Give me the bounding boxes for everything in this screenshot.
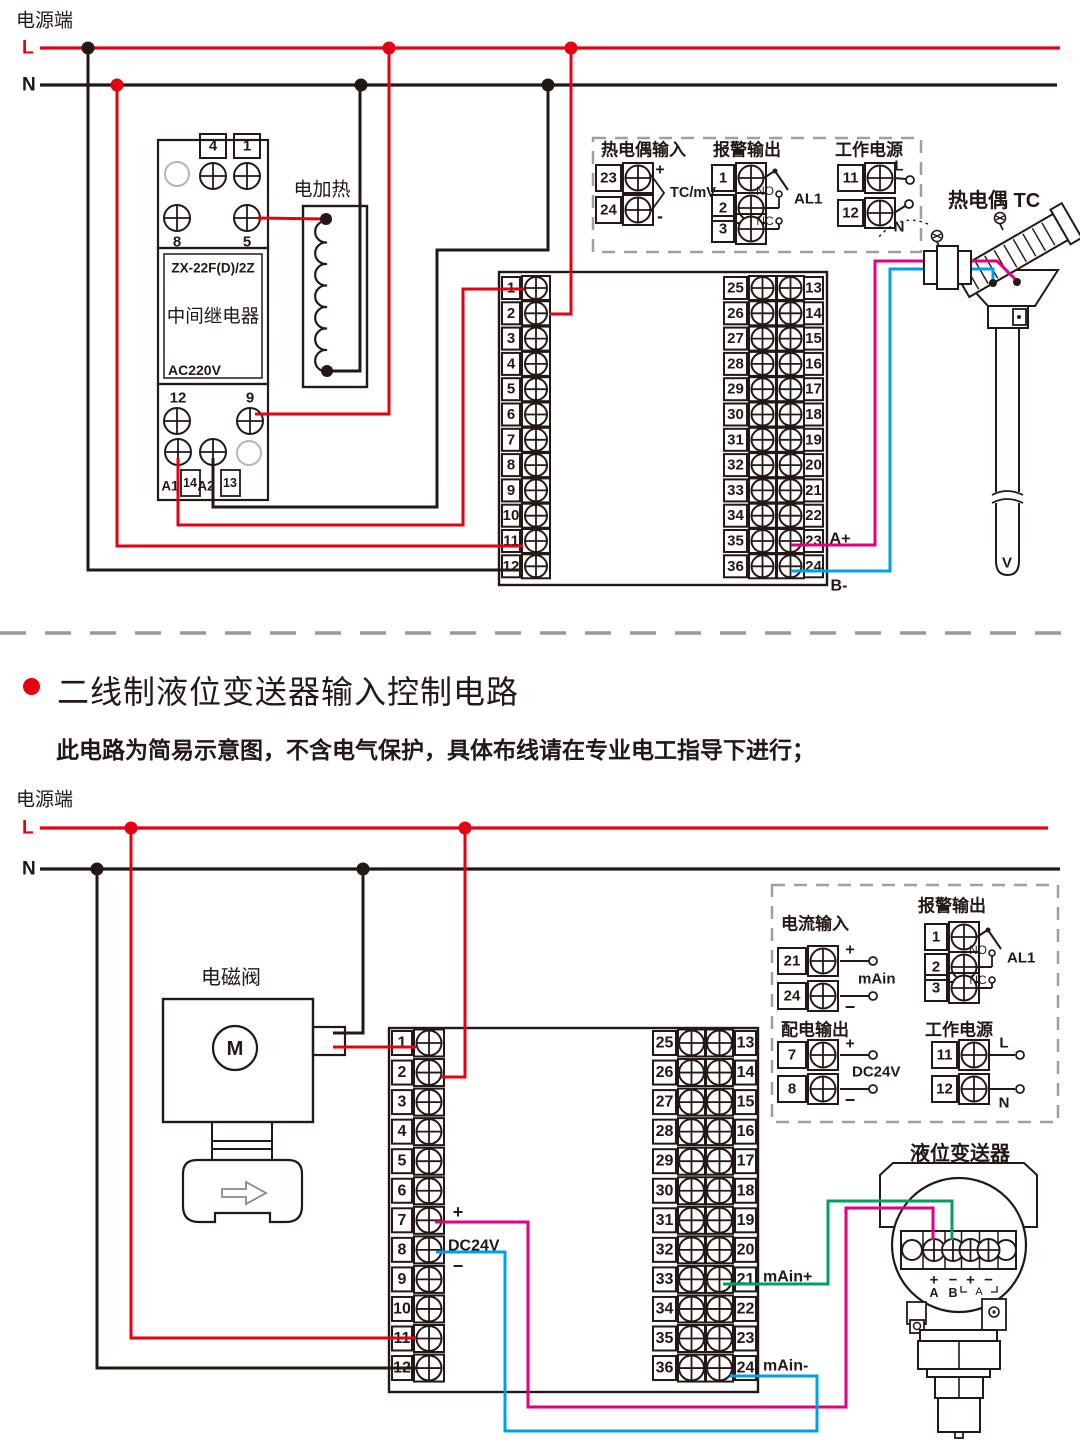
terminal-number: 13: [737, 1035, 755, 1052]
tc-tip-mark: V: [1002, 555, 1012, 572]
label: N: [894, 219, 905, 236]
terminal-number: 28: [656, 1123, 674, 1140]
screw-terminal-icon: [679, 1031, 704, 1056]
panel-group-title: 电流输入: [781, 914, 849, 934]
terminal-number: 6: [398, 1182, 407, 1199]
junction-dot: [357, 863, 370, 876]
screw-terminal-icon: [525, 505, 547, 527]
terminal-number: 3: [507, 330, 515, 347]
section-note: 此电路为简易示意图，不含电气保护，具体布线请在专业电工指导下进行；: [56, 731, 815, 765]
terminal-number: 12: [936, 1081, 953, 1098]
screw-terminal-icon: [780, 530, 802, 552]
switch-arm: [775, 171, 788, 190]
terminal-number: 2: [932, 959, 940, 976]
terminal-number: 10: [393, 1300, 411, 1317]
terminal-number: 29: [727, 381, 744, 398]
terminal-number: 1: [243, 138, 251, 155]
screw-terminal-icon: [525, 302, 547, 324]
terminal-number: 6: [507, 406, 515, 423]
heater-label: 电加热: [293, 179, 350, 201]
terminal-number: 21: [805, 482, 822, 499]
label: +: [655, 162, 664, 179]
neck-collar: [920, 1330, 997, 1341]
screw-terminal-icon: [780, 328, 802, 350]
label: −: [845, 1090, 856, 1110]
wire: [894, 178, 906, 179]
screw-terminal-icon: [752, 479, 774, 501]
wire-heater-to-n: [327, 85, 360, 371]
terminal-number: 18: [737, 1182, 755, 1199]
bottom-power-rails: 电源端LN: [16, 789, 1060, 880]
power-terminal-label: 电源端: [16, 789, 73, 811]
label: −: [845, 997, 856, 1017]
screw-terminal-icon: [234, 163, 260, 189]
screw-terminal-icon: [679, 1149, 704, 1174]
screw-terminal-icon: [417, 1237, 442, 1262]
terminal-number: 30: [727, 406, 744, 423]
junction-dot: [91, 863, 104, 876]
panel-group-title: 工作电源: [835, 140, 903, 160]
terminal-number: 8: [788, 1081, 796, 1098]
screw-terminal-icon: [752, 277, 774, 299]
open-terminal: [869, 992, 877, 1000]
screw-terminal-icon: [679, 1326, 704, 1351]
junction-dot: [542, 79, 555, 92]
terminal-number: 11: [937, 1047, 953, 1064]
screw-terminal-icon: [752, 505, 774, 527]
terminal-number: 26: [727, 305, 744, 322]
screw-terminal-icon: [707, 1090, 732, 1115]
wiring-diagram-page: 电源端LN4185ZX-22F(D)/2Z中间继电器AC220V129A114A…: [0, 0, 1080, 1455]
screw-terminal-icon: [868, 166, 893, 191]
open-terminal: [869, 1085, 877, 1093]
label: +: [845, 942, 854, 959]
terminal-number: 14: [805, 305, 822, 322]
screw-terminal-icon: [752, 555, 774, 577]
screw-terminal-icon: [626, 198, 651, 223]
polarity-label: −: [984, 1272, 993, 1289]
label: +: [453, 1202, 464, 1222]
terminal-number: 7: [507, 431, 515, 448]
wire-l-to-12: [88, 48, 522, 570]
screw-terminal-icon: [417, 1208, 442, 1233]
screw-terminal-icon: [811, 1043, 836, 1068]
terminal-number: 33: [727, 482, 744, 499]
terminal-number: 21: [784, 953, 801, 970]
terminal-number: 31: [656, 1212, 674, 1229]
terminal-number: 5: [507, 381, 515, 398]
screw-terminal-icon: [780, 555, 802, 577]
open-terminal: [906, 176, 914, 184]
label: 12: [170, 390, 187, 407]
tc-probe-upper: [996, 328, 1019, 494]
label: L: [999, 1035, 1008, 1052]
screw-terminal-icon: [752, 404, 774, 426]
terminal-number: 3: [932, 980, 940, 997]
wire-n-to-12: [97, 869, 416, 1368]
ab-label: A: [929, 1286, 938, 1300]
terminal-number: 7: [788, 1047, 796, 1064]
screw-terminal-icon: [417, 1090, 442, 1115]
screw-terminal-icon: [234, 205, 260, 231]
terminal-number: 23: [805, 533, 822, 550]
screw-terminal-icon: [707, 1149, 732, 1174]
terminal-number: 17: [737, 1153, 755, 1170]
screw-terminal-icon: [626, 166, 651, 191]
main-minus-label: mAin-: [763, 1358, 808, 1375]
screw-terminal-icon: [679, 1090, 704, 1115]
terminal-number: 36: [727, 558, 744, 575]
terminal-number: 26: [656, 1064, 674, 1081]
line-n-label: N: [22, 75, 36, 96]
terminal-number: 32: [656, 1241, 674, 1258]
terminal-number: 23: [737, 1330, 755, 1347]
junction-dot: [459, 822, 472, 835]
line-n-label: N: [22, 859, 36, 880]
ab-label: B: [948, 1286, 957, 1300]
screw-terminal-icon: [525, 530, 547, 552]
terminal-number: 24: [600, 202, 617, 219]
terminal-number: 16: [805, 355, 822, 372]
motor-label: M: [227, 1038, 244, 1060]
polarity-label: +: [966, 1272, 975, 1289]
terminal-number: 3: [398, 1094, 407, 1111]
neck-flange: [927, 1369, 990, 1377]
screw-terminal-icon: [780, 454, 802, 476]
terminal-number: 20: [737, 1241, 755, 1258]
label: -: [657, 206, 663, 226]
label: 14: [183, 476, 197, 490]
terminal-number: 1: [719, 170, 727, 187]
relay-model: ZX-22F(D)/2Z: [171, 261, 254, 276]
terminal-number: 8: [398, 1241, 407, 1258]
screw-terminal-icon: [525, 479, 547, 501]
section-title: 二线制液位变送器输入控制电路: [57, 667, 519, 713]
screw-terminal-icon: [707, 1119, 732, 1144]
terminal-number: 18: [805, 406, 822, 423]
screw-terminal-icon: [707, 1237, 732, 1262]
terminal-number: 13: [805, 280, 822, 297]
bracket-label: A: [975, 1286, 983, 1298]
screw-terminal-icon: [525, 353, 547, 375]
solenoid-valve: 电磁阀M: [163, 966, 345, 1222]
screw-terminal-icon: [962, 1043, 987, 1068]
junction-dot: [82, 42, 95, 55]
screw-terminal-icon: [752, 302, 774, 324]
terminal-number: 12: [842, 205, 859, 222]
panel-group-title: 热电偶输入: [601, 140, 686, 160]
no-contact: [776, 191, 782, 197]
screw-terminal-icon: [200, 163, 226, 189]
screw-terminal-icon: [164, 408, 190, 434]
terminal-number: 33: [656, 1271, 674, 1288]
heater-coil: [315, 221, 327, 372]
screw-terminal-icon: [707, 1208, 732, 1233]
terminal-number: 8: [507, 457, 515, 474]
junction-dot: [1013, 278, 1021, 286]
junction-dot: [565, 42, 578, 55]
wire-a-plus: [791, 261, 1017, 545]
label: NC: [969, 973, 987, 987]
power-terminal-label: 电源端: [16, 10, 73, 32]
screw-terminal-icon: [811, 949, 836, 974]
open-terminal: [905, 200, 913, 208]
tc-label: 热电偶 TC: [948, 188, 1040, 212]
screw-terminal-icon: [707, 1296, 732, 1321]
screw-terminal-icon: [707, 1031, 732, 1056]
terminal-number: 7: [398, 1212, 407, 1229]
level-transmitter: 液位变送器+−+−ABA: [880, 1141, 1037, 1438]
main-label: mAin: [858, 971, 896, 988]
junction-dot: [320, 213, 332, 225]
terminal-number: 22: [737, 1300, 755, 1317]
screw-terminal-icon: [164, 205, 190, 231]
screw-terminal-icon: [707, 1178, 732, 1203]
ear-hole: [914, 1323, 921, 1330]
heater-box: [303, 206, 367, 387]
junction-dot: [355, 79, 368, 92]
terminal-number: 32: [727, 457, 744, 474]
relay-top-box: [158, 140, 268, 248]
terminal-number: 2: [507, 305, 515, 322]
relay: 4185ZX-22F(D)/2Z中间继电器AC220V129A114A213: [158, 134, 268, 500]
wire-dc24v-minus-to-24: [436, 1252, 817, 1431]
screw-terminal-icon: [417, 1356, 442, 1381]
wires-bottom: [91, 822, 953, 1432]
screw-terminal-icon: [679, 1119, 704, 1144]
screw-terminal-icon: [752, 353, 774, 375]
screw-terminal-icon: [780, 429, 802, 451]
junction-dot: [1017, 315, 1021, 319]
screw-terminal-icon: [752, 454, 774, 476]
junction-dot: [321, 365, 333, 377]
terminal-number: 28: [727, 355, 744, 372]
screw-terminal-icon: [780, 302, 802, 324]
screw-terminal-icon: [752, 530, 774, 552]
screw-terminal-icon: [811, 984, 836, 1009]
line: [1000, 224, 1003, 230]
terminal-number: 36: [656, 1360, 674, 1377]
terminal-number: 20: [805, 457, 822, 474]
label: N: [999, 1095, 1010, 1112]
relay-hole: [237, 441, 261, 465]
screw-terminal-icon: [780, 277, 802, 299]
panel-group-title: 工作电源: [925, 1020, 993, 1040]
screw-terminal-icon: [417, 1178, 442, 1203]
screw-terminal-icon: [679, 1208, 704, 1233]
terminal-number: 4: [507, 355, 516, 372]
terminal-number: 25: [727, 280, 744, 297]
label: NO: [969, 943, 987, 957]
terminal-number: 29: [656, 1153, 674, 1170]
screw-terminal-icon: [679, 1178, 704, 1203]
screw-terminal-icon: [707, 1267, 732, 1292]
section-bullet-icon: [23, 678, 40, 695]
wire-l-to-relay9: [255, 48, 389, 414]
gland: [924, 251, 937, 284]
wire-n-to-a2: [213, 85, 548, 507]
panel-group-title: 报警输出: [713, 140, 781, 160]
top-power-rails: 电源端LN: [16, 10, 1060, 96]
tc-mv-label: TC/mV: [670, 185, 716, 201]
screw-terminal-icon: [525, 404, 547, 426]
screw-terminal-icon: [679, 1237, 704, 1262]
terminal-number: 4: [209, 138, 218, 155]
tc-cable-gland: [924, 246, 971, 289]
wire-relay5-to-heater: [258, 218, 324, 219]
screw-terminal-icon: [780, 378, 802, 400]
label: NO: [756, 184, 774, 198]
gland: [937, 246, 958, 289]
screw-terminal-icon: [679, 1296, 704, 1321]
dc24v-label: DC24V: [852, 1064, 900, 1081]
label: −: [453, 1256, 464, 1276]
solenoid-connector: [313, 1027, 345, 1055]
screw-terminal-icon: [679, 1267, 704, 1292]
terminal-number: 2: [398, 1064, 407, 1081]
strip-hole: [902, 1240, 922, 1260]
terminal-number: 31: [727, 431, 744, 448]
screw-terminal-icon: [752, 328, 774, 350]
terminal-number: 27: [727, 330, 744, 347]
junction-dot: [992, 1310, 995, 1313]
screw-terminal-icon: [962, 1077, 987, 1102]
terminal-number: 2: [719, 200, 727, 217]
screw-terminal-icon: [780, 353, 802, 375]
panel-group-title: 报警输出: [918, 896, 986, 916]
screw-terminal-icon: [707, 1326, 732, 1351]
terminal-number: 1: [398, 1035, 407, 1052]
relay-hole: [165, 162, 189, 186]
nc-contact: [989, 977, 995, 983]
screw-terminal-icon: [978, 1239, 1000, 1261]
terminal-number: 16: [737, 1123, 755, 1140]
screw-terminal-icon: [525, 429, 547, 451]
screw-terminal-icon: [780, 505, 802, 527]
terminal-number: 19: [805, 431, 822, 448]
screw-terminal-icon: [417, 1031, 442, 1056]
terminal-number: 22: [805, 507, 822, 524]
terminal-number: 15: [805, 330, 822, 347]
screw-terminal-icon: [868, 201, 893, 226]
wiring-diagram-svg: 电源端LN4185ZX-22F(D)/2Z中间继电器AC220V129A114A…: [0, 0, 1080, 1455]
terminal-number: 34: [656, 1300, 674, 1317]
screw-terminal-icon: [417, 1326, 442, 1351]
screw-terminal-icon: [525, 277, 547, 299]
label: NC: [756, 214, 774, 228]
label: L: [894, 158, 903, 175]
screw-terminal-icon: [417, 1267, 442, 1292]
screw-terminal-icon: [679, 1356, 704, 1381]
terminal-number: 27: [656, 1094, 674, 1111]
screw-terminal-icon: [752, 429, 774, 451]
wire-l-to-11: [131, 828, 416, 1338]
b-minus-label: B-: [831, 578, 848, 595]
terminal-number: 15: [737, 1094, 755, 1111]
terminal-number: 14: [737, 1064, 755, 1081]
junction-dot: [125, 822, 138, 835]
terminal-number: 23: [600, 170, 617, 187]
screw-terminal-icon: [707, 1356, 732, 1381]
screw-terminal-icon: [237, 408, 263, 434]
screw-terminal-icon: [525, 555, 547, 577]
wire-solenoid-to-n: [333, 869, 363, 1033]
terminal-number: 9: [398, 1271, 407, 1288]
screw-terminal-icon: [417, 1119, 442, 1144]
open-terminal: [869, 1051, 877, 1059]
label: A1: [161, 479, 179, 494]
terminal-number: 3: [719, 221, 727, 238]
electric-heater: 电加热: [293, 179, 367, 388]
terminal-number: 5: [398, 1153, 407, 1170]
terminal-number: 35: [727, 533, 744, 550]
screw-terminal-icon: [417, 1060, 442, 1085]
label: 13: [223, 476, 237, 490]
transmitter-label: 液位变送器: [910, 1141, 1011, 1165]
probe: [938, 1398, 980, 1432]
no-contact: [989, 950, 995, 956]
tc-wing-screw-icon: [995, 213, 1006, 231]
screw-terminal-icon: [780, 404, 802, 426]
terminal-number: 4: [398, 1123, 407, 1140]
label: +: [845, 1036, 854, 1053]
al1-label: AL1: [1007, 950, 1035, 967]
screw-terminal-icon: [679, 1060, 704, 1085]
relay-voltage: AC220V: [168, 362, 222, 378]
terminal-number: 30: [656, 1182, 674, 1199]
terminal-number: 11: [843, 170, 859, 187]
junction-dot: [989, 279, 997, 287]
thermocouple: 热电偶 TCV: [878, 188, 1080, 575]
label: 9: [246, 390, 254, 407]
screw-terminal-icon: [525, 454, 547, 476]
terminal-block-bottom: 1234567891011122513261427152816291730183…: [389, 1028, 812, 1392]
line-l-label: L: [22, 818, 34, 839]
terminal-number: 12: [503, 558, 520, 575]
terminal-number: 35: [656, 1330, 674, 1347]
solenoid-label: 电磁阀: [201, 966, 261, 989]
terminal-number: 9: [507, 482, 515, 499]
terminal-number: 34: [727, 507, 744, 524]
terminal-number: 17: [805, 381, 822, 398]
screw-terminal-icon: [417, 1296, 442, 1321]
terminal-number: 19: [737, 1212, 755, 1229]
gland: [958, 251, 971, 284]
terminal-number: 24: [784, 988, 801, 1005]
terminal-number: 24: [737, 1360, 755, 1377]
switch-arm: [988, 930, 1001, 949]
al1-label: AL1: [794, 191, 822, 208]
terminal-number: 25: [656, 1035, 674, 1052]
screw-terminal-icon: [707, 1060, 732, 1085]
terminal-number: 1: [932, 929, 940, 946]
nc-contact: [776, 218, 782, 224]
screw-terminal-icon: [525, 328, 547, 350]
screw-terminal-icon: [752, 378, 774, 400]
open-terminal: [1016, 1085, 1024, 1093]
screw-terminal-icon: [811, 1077, 836, 1102]
open-terminal: [1016, 1051, 1024, 1059]
panel-group-title: 配电输出: [781, 1020, 849, 1040]
io-panel-bottom: 电流输入2124+−mAin配电输出78+−DC24V报警输出123NONCAL…: [772, 885, 1058, 1122]
screw-terminal-icon: [417, 1149, 442, 1174]
screw-terminal-icon: [780, 479, 802, 501]
junction-dot: [111, 79, 124, 92]
screw-terminal-icon: [525, 378, 547, 400]
terminal-number: 10: [503, 507, 520, 524]
open-terminal: [869, 957, 877, 965]
line-l-label: L: [22, 38, 34, 59]
